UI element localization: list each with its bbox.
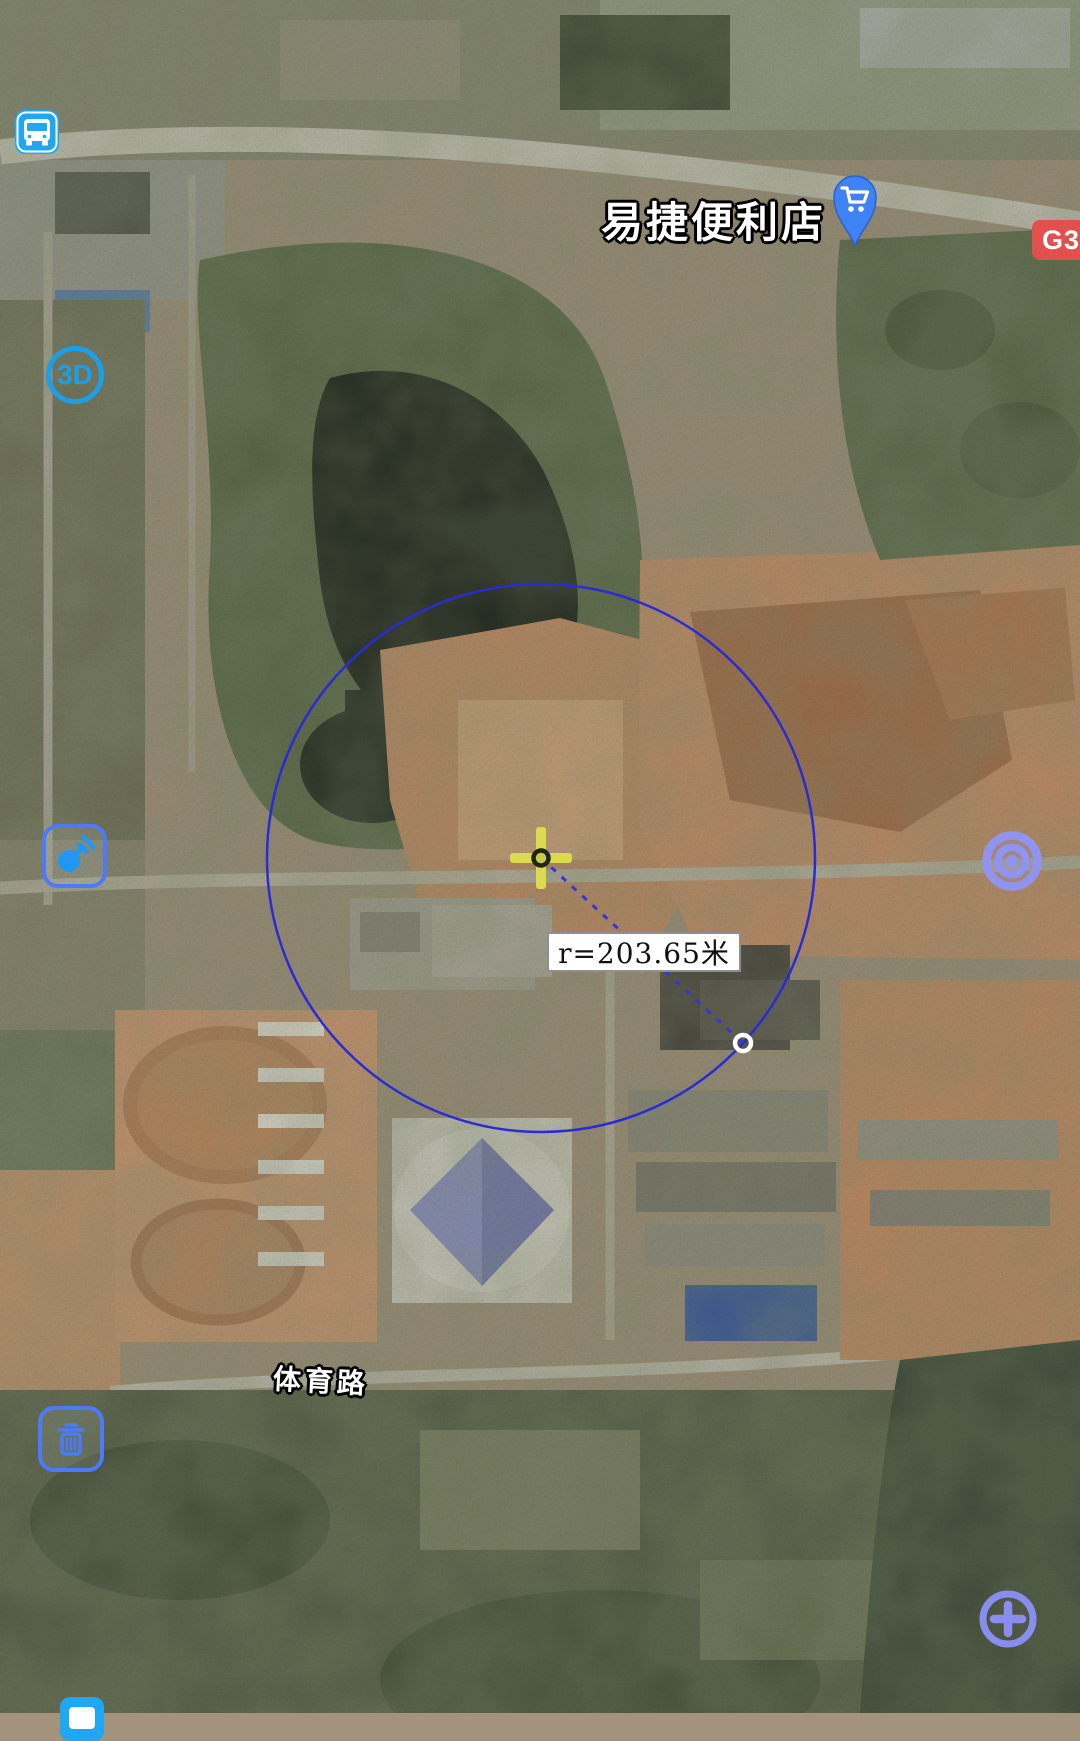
plus-icon <box>979 1590 1037 1648</box>
shopping-cart-pin-icon[interactable] <box>830 172 880 250</box>
radius-value-label: r=203.65米 <box>547 932 741 972</box>
partial-bottom-button[interactable] <box>60 1697 104 1741</box>
map-app-screen: { "map": { "poi_label": "易捷便利店", "highwa… <box>0 0 1080 1713</box>
bus-stop-button[interactable] <box>15 110 59 154</box>
view-3d-label: 3D <box>57 359 93 391</box>
view-3d-button[interactable]: 3D <box>46 346 104 404</box>
locate-target-button[interactable] <box>978 827 1046 895</box>
poi-label[interactable]: 易捷便利店 <box>601 189 826 250</box>
zoom-in-button[interactable] <box>979 1590 1037 1648</box>
highway-shield-badge: G32 <box>1032 220 1080 260</box>
delete-measurement-button[interactable] <box>38 1406 104 1472</box>
satellite-signal-button[interactable] <box>42 824 107 888</box>
target-rings-icon <box>978 827 1046 895</box>
satellite-imagery[interactable] <box>0 0 1080 1713</box>
trash-icon <box>49 1417 93 1461</box>
road-name-label: 体育路 <box>272 1358 370 1403</box>
satellite-dish-icon <box>53 834 97 878</box>
